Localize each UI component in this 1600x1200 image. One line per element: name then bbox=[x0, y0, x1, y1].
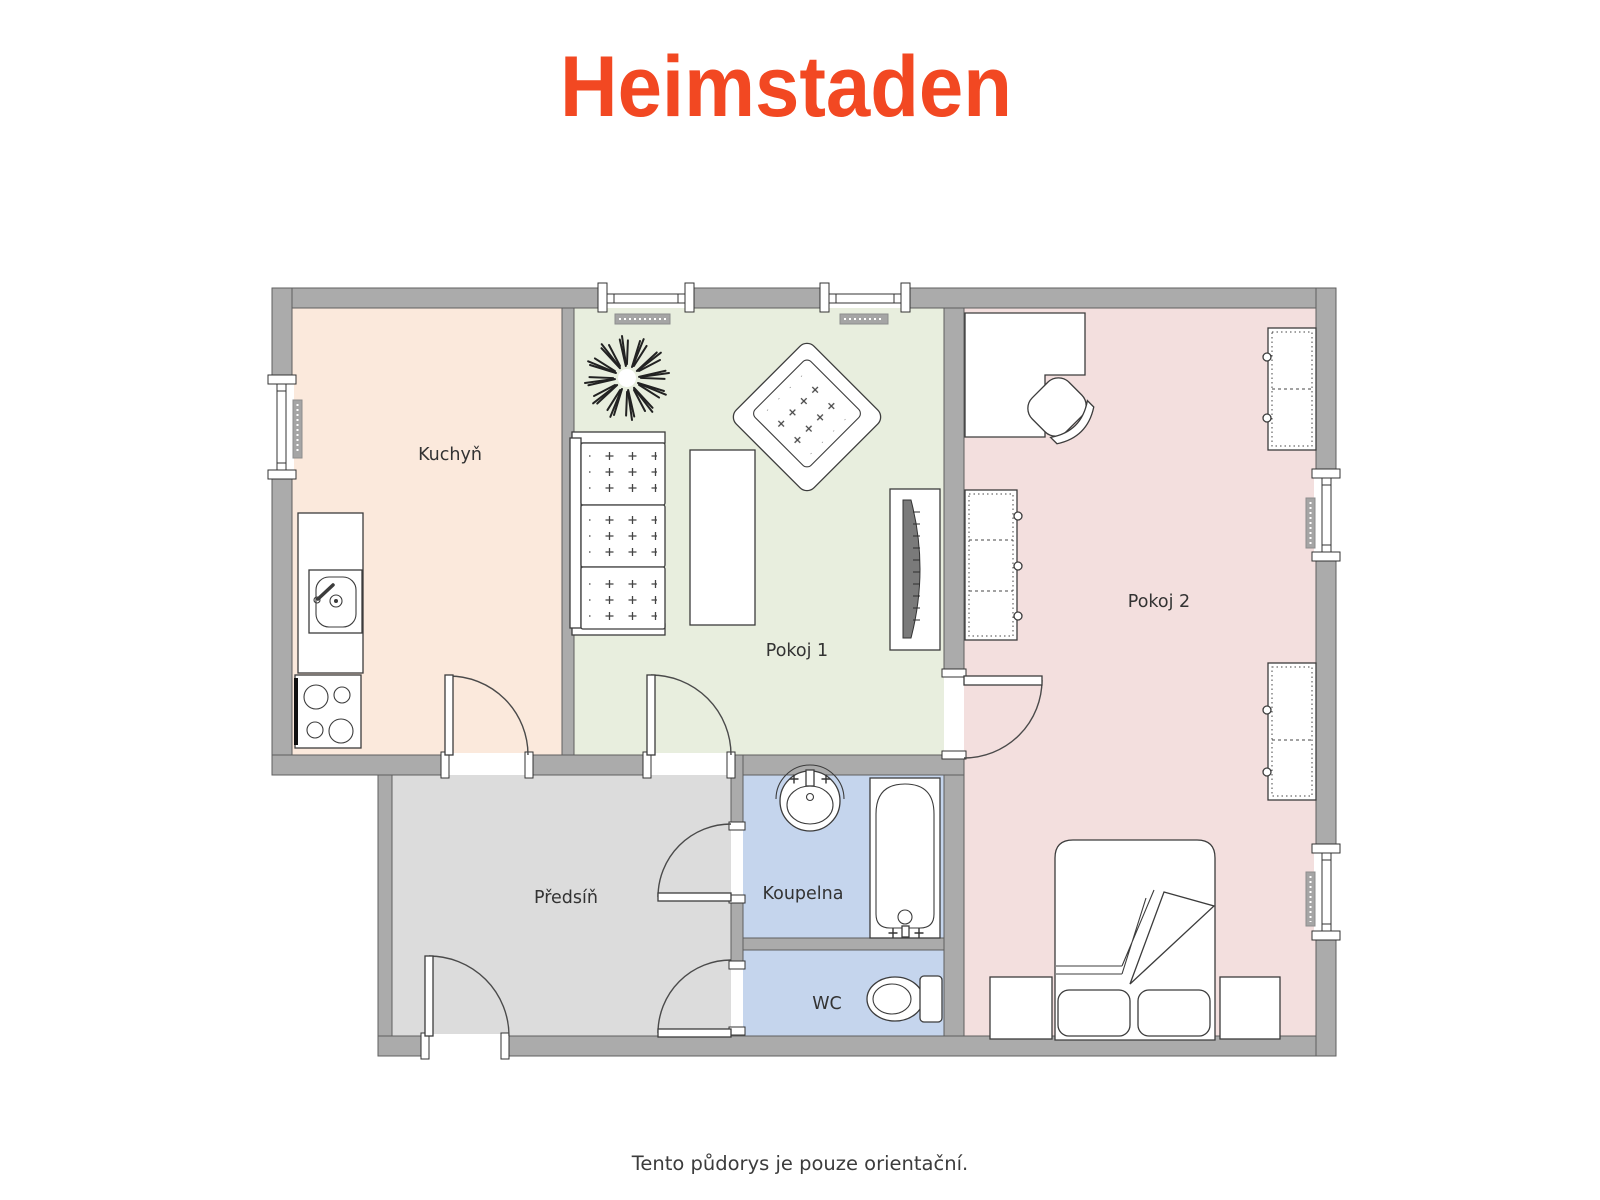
wardrobe bbox=[1263, 663, 1316, 800]
stove bbox=[294, 675, 361, 748]
window-right-1 bbox=[1312, 469, 1340, 561]
wardrobe bbox=[1263, 328, 1316, 450]
coffee-table bbox=[690, 450, 755, 625]
floor-plan: Heimstaden bbox=[0, 0, 1600, 1200]
room-label-wc: WC bbox=[812, 994, 842, 1014]
floor-plan-page: Heimstaden bbox=[0, 0, 1600, 1200]
window-top-1 bbox=[598, 283, 694, 312]
brand-logo: Heimstaden bbox=[560, 39, 1012, 135]
room-label-pokoj1: Pokoj 1 bbox=[766, 641, 828, 661]
room-label-predsin: Předsíň bbox=[534, 888, 598, 908]
disclaimer-text: Tento půdorys je pouze orientační. bbox=[631, 1152, 968, 1175]
window-left-kitchen bbox=[268, 375, 296, 479]
room-label-pokoj2: Pokoj 2 bbox=[1128, 592, 1190, 612]
bathtub bbox=[870, 778, 940, 938]
room-label-koupelna: Koupelna bbox=[763, 884, 844, 904]
nightstand bbox=[990, 977, 1052, 1039]
sofa bbox=[570, 432, 665, 635]
kitchen-furniture bbox=[294, 513, 363, 748]
toilet-icon bbox=[867, 976, 942, 1022]
room-label-kuchyn: Kuchyň bbox=[418, 445, 482, 465]
bed bbox=[1055, 840, 1215, 1040]
tv-icon bbox=[890, 489, 940, 650]
nightstand bbox=[1220, 977, 1280, 1039]
window-right-2 bbox=[1312, 844, 1340, 940]
pillow bbox=[1138, 990, 1210, 1036]
window-top-2 bbox=[820, 283, 910, 312]
kitchen-sink bbox=[309, 570, 362, 633]
wardrobe bbox=[965, 490, 1022, 640]
pillow bbox=[1058, 990, 1130, 1036]
